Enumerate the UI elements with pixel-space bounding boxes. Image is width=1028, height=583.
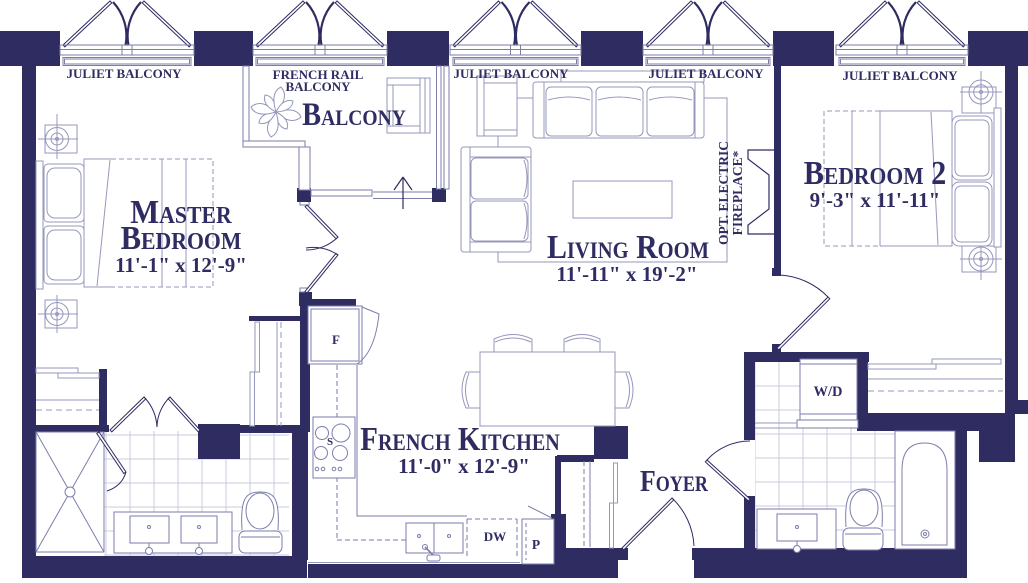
svg-text:11'-11" x 19'-2": 11'-11" x 19'-2" [556, 262, 697, 286]
svg-text:S: S [327, 436, 333, 448]
svg-text:JULIET BALCONY: JULIET BALCONY [649, 66, 765, 81]
svg-text:11'-0" x 12'-9": 11'-0" x 12'-9" [398, 454, 530, 478]
svg-text:JULIET BALCONY: JULIET BALCONY [454, 66, 570, 81]
svg-text:Foyer: Foyer [640, 465, 708, 499]
svg-text:Living Room: Living Room [547, 227, 709, 265]
svg-text:JULIET BALCONY: JULIET BALCONY [67, 66, 183, 81]
svg-text:11'-1" x 12'-9": 11'-1" x 12'-9" [115, 253, 247, 277]
svg-text:9'-3" x 11'-11": 9'-3" x 11'-11" [810, 188, 941, 212]
svg-text:French Kitchen: French Kitchen [360, 420, 560, 458]
svg-text:Balcony: Balcony [302, 96, 406, 132]
svg-text:Bedroom: Bedroom [121, 219, 242, 257]
svg-text:BALCONY: BALCONY [285, 79, 351, 94]
svg-text:DW: DW [484, 529, 506, 544]
svg-text:JULIET BALCONY: JULIET BALCONY [843, 68, 959, 83]
svg-text:FIREPLACE*: FIREPLACE* [730, 150, 745, 235]
svg-text:P: P [532, 537, 540, 552]
svg-text:Bedroom 2: Bedroom 2 [804, 153, 947, 191]
svg-text:OPT. ELECTRIC: OPT. ELECTRIC [716, 141, 731, 245]
svg-text:W/D: W/D [814, 384, 843, 400]
svg-text:F: F [332, 332, 340, 347]
